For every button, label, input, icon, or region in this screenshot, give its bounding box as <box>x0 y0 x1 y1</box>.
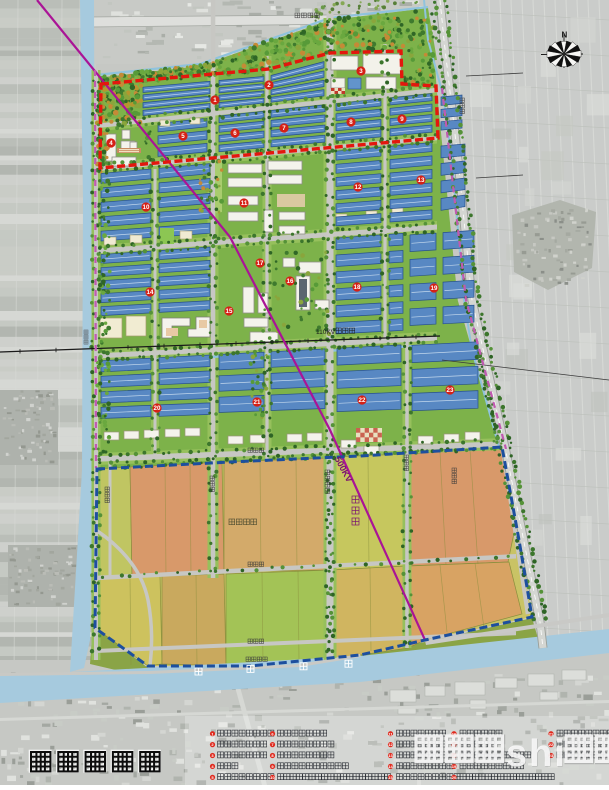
svg-text:shi: shi <box>506 733 567 775</box>
svg-text:16: 16 <box>287 278 294 285</box>
svg-text:5: 5 <box>181 133 185 140</box>
svg-text:20: 20 <box>452 775 457 780</box>
svg-text:20: 20 <box>154 405 161 412</box>
svg-text:19: 19 <box>431 285 438 292</box>
svg-text:12: 12 <box>355 184 362 191</box>
svg-text:110KV: 110KV <box>316 329 336 336</box>
svg-text:3: 3 <box>359 68 363 75</box>
svg-text:1: 1 <box>213 97 217 104</box>
svg-text:12: 12 <box>388 742 393 747</box>
svg-text:14: 14 <box>147 289 154 296</box>
svg-text:13: 13 <box>388 753 393 758</box>
svg-text:19: 19 <box>452 764 457 769</box>
svg-text:4: 4 <box>109 140 113 147</box>
svg-text:23: 23 <box>447 387 454 394</box>
svg-text:10: 10 <box>270 775 275 780</box>
svg-text:13: 13 <box>418 177 425 184</box>
svg-text:10: 10 <box>143 204 150 211</box>
svg-text:15: 15 <box>226 308 233 315</box>
svg-text:8: 8 <box>349 119 353 126</box>
svg-text:2: 2 <box>267 82 271 89</box>
svg-text:17: 17 <box>257 260 264 267</box>
svg-text:14: 14 <box>388 764 393 769</box>
svg-text:21: 21 <box>254 399 261 406</box>
svg-text:22: 22 <box>359 397 366 404</box>
svg-text:9: 9 <box>400 116 404 123</box>
svg-text:7: 7 <box>282 125 286 132</box>
svg-text:6: 6 <box>233 130 237 137</box>
svg-text:15: 15 <box>388 775 393 780</box>
svg-text:18: 18 <box>354 284 361 291</box>
svg-text:11: 11 <box>241 200 248 207</box>
svg-text:N: N <box>562 31 568 40</box>
